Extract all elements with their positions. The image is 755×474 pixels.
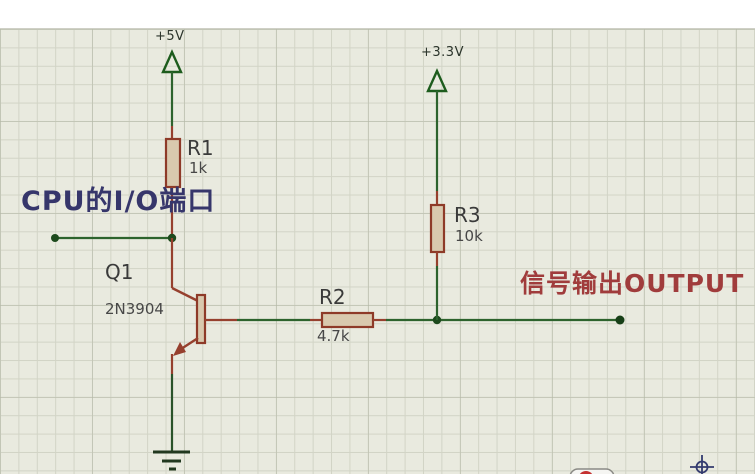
power-label-5v[interactable]: +5V	[155, 30, 185, 43]
q1-ref-label[interactable]: Q1	[105, 262, 133, 282]
net-output[interactable]	[386, 316, 625, 325]
power-flag-5v[interactable]	[163, 52, 181, 139]
schematic-editor-canvas: +5V +3.3V R1 1k CPU的I/O端口 Q1 2N3904 R2 4…	[0, 0, 755, 474]
r3-ref-label[interactable]: R3	[454, 205, 481, 225]
output-annotation[interactable]: 信号输出OUTPUT	[520, 271, 744, 296]
r1-value-label[interactable]: 1k	[189, 161, 207, 176]
resistor-r2[interactable]	[322, 313, 386, 327]
r2-ref-label[interactable]: R2	[319, 287, 346, 307]
power-flag-3v3[interactable]	[428, 71, 446, 205]
transistor-q1[interactable]	[172, 238, 237, 356]
origin-marker	[690, 455, 714, 474]
resistor-body[interactable]	[431, 205, 444, 252]
power-arrow-icon[interactable]	[428, 71, 446, 91]
power-label-3v3[interactable]: +3.3V	[421, 46, 464, 59]
schematic-drawing	[0, 0, 755, 474]
wire-end-dot[interactable]	[51, 234, 59, 242]
r2-value-label[interactable]: 4.7k	[317, 329, 350, 344]
r3-value-label[interactable]: 10k	[455, 229, 483, 244]
resistor-body[interactable]	[322, 313, 373, 327]
emitter-arrow-icon	[173, 342, 186, 356]
ground-symbol[interactable]	[153, 452, 190, 469]
net-cpu-io[interactable]	[51, 234, 176, 242]
resistor-body[interactable]	[166, 139, 180, 187]
watermark-partial	[570, 469, 614, 474]
q1-value-label[interactable]: 2N3904	[105, 302, 164, 317]
power-arrow-icon[interactable]	[163, 52, 181, 72]
watermark-outline	[570, 469, 614, 474]
r1-ref-label[interactable]: R1	[187, 138, 214, 158]
resistor-r3[interactable]	[431, 205, 444, 320]
wire-end-dot[interactable]	[616, 316, 625, 325]
cpu-io-annotation[interactable]: CPU的I/O端口	[21, 188, 215, 215]
base-bar[interactable]	[197, 295, 205, 343]
collector-lead[interactable]	[172, 288, 198, 301]
